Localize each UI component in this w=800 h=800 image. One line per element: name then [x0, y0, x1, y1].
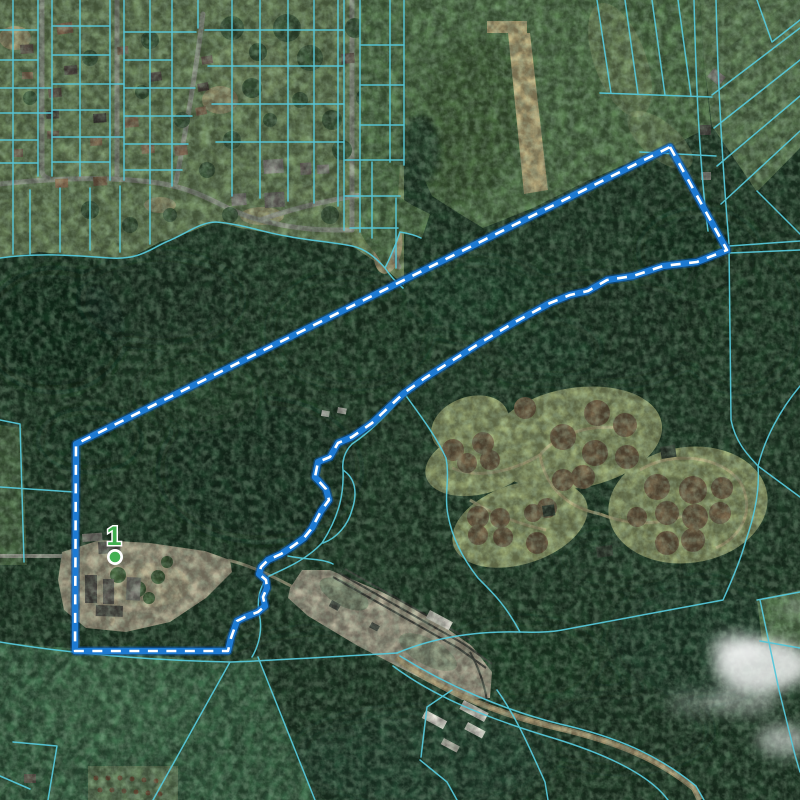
satellite-map[interactable]: 1 [0, 0, 800, 800]
marker-label: 1 [106, 521, 121, 551]
parcel-marker[interactable]: 1 [106, 521, 123, 565]
marker-dot-fill [110, 552, 121, 563]
map-viewport[interactable]: 1 [0, 0, 800, 800]
